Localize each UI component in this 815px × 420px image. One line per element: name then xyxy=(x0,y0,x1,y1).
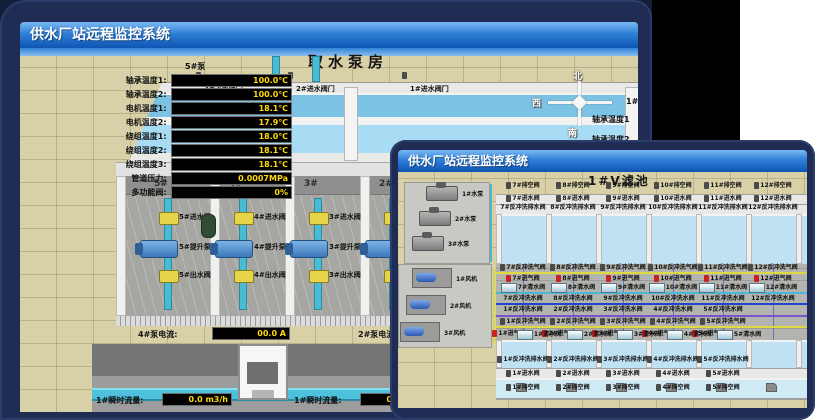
outlet-valve-label[interactable]: 5#出水阀 xyxy=(179,272,211,279)
backwash-drain-valve-label[interactable]: 5#反冲洗排水阀 xyxy=(695,356,751,363)
valve-icon[interactable] xyxy=(647,356,652,363)
clean-water-valve-label[interactable]: 4#清水阀 xyxy=(661,330,717,340)
inlet-valve[interactable] xyxy=(234,212,254,225)
valve-icon[interactable] xyxy=(506,195,511,202)
panel-row: 多功能阀:0% xyxy=(60,186,292,198)
valve-icon[interactable] xyxy=(500,264,505,271)
valve-icon[interactable] xyxy=(500,318,505,325)
valve-icon[interactable] xyxy=(654,195,659,202)
valve-icon[interactable] xyxy=(697,356,702,363)
inlet-valve-label[interactable]: 12#进水阀 xyxy=(745,195,801,202)
valve-icon[interactable] xyxy=(556,182,561,189)
bay-number: 3# xyxy=(304,179,318,189)
lift-pump-label[interactable]: 4#提升泵 xyxy=(254,244,286,251)
tank-icon[interactable] xyxy=(717,330,733,340)
inlet-valve-label[interactable]: 5#进水阀 xyxy=(695,370,751,377)
backwash-water-valve-label[interactable]: 8#反冲洗水阀 xyxy=(545,296,601,302)
backwash-drain-valve-label[interactable]: 10#反冲洗排水阀 xyxy=(645,205,701,211)
clean-water-valve-label[interactable]: 5#清水阀 xyxy=(711,330,767,340)
valve-icon[interactable] xyxy=(506,370,511,377)
outlet-valve-label[interactable]: 3#出水阀 xyxy=(329,272,361,279)
alarm-valve-icon[interactable] xyxy=(606,275,611,282)
inlet-valve-label[interactable]: 2#进水阀 xyxy=(545,370,601,377)
drain-valve-label[interactable]: 7#排空阀 xyxy=(495,182,551,189)
inlet-valve-label[interactable]: 3#进水阀 xyxy=(595,370,651,377)
background-gap xyxy=(652,0,740,153)
outlet-valve-label[interactable]: 4#出水阀 xyxy=(254,272,286,279)
valve-icon[interactable] xyxy=(606,370,611,377)
clean-water-valve-label[interactable]: 3#清水阀 xyxy=(611,330,667,340)
backwash-water-valve-label[interactable]: 9#反冲洗水阀 xyxy=(595,296,651,302)
roof-pipe xyxy=(312,56,320,82)
pool-divider xyxy=(596,340,602,368)
panel-row-label: 绕组温度1: xyxy=(60,131,171,142)
valve-icon[interactable] xyxy=(606,384,611,391)
filter-pump[interactable] xyxy=(426,186,458,201)
backwash-water-valve-label[interactable]: 4#反冲洗水阀 xyxy=(645,307,701,313)
channel-divider xyxy=(344,87,358,161)
backwash-drain-valve-label[interactable]: 11#反冲洗排水阀 xyxy=(695,205,751,211)
pool-divider xyxy=(546,214,552,264)
panel-row-label: 电机温度2: xyxy=(60,117,171,128)
panel-row-display[interactable]: 0.0007MPa xyxy=(171,172,292,185)
backwash-air-valve-label[interactable]: 3#反冲洗气阀 xyxy=(595,318,651,325)
pool-divider xyxy=(496,340,502,368)
drain-valve-label[interactable]: 11#排空阀 xyxy=(695,182,751,189)
backwash-air-valve-label[interactable]: 1#反冲洗气阀 xyxy=(495,318,551,325)
alarm-valve-icon[interactable] xyxy=(506,275,511,282)
inlet-valve-label[interactable]: 1#进水阀 xyxy=(495,370,551,377)
pump-current-display[interactable]: 00.0 A xyxy=(212,327,290,340)
valve-icon[interactable] xyxy=(656,384,661,391)
cabinet-pedestal xyxy=(252,390,274,398)
panel-row-label: 电机温度1: xyxy=(60,103,171,114)
pool-divider xyxy=(546,340,552,368)
tank-icon[interactable] xyxy=(567,330,583,340)
desktop: 供水厂站远程监控系统 取水泵房 xyxy=(0,0,815,420)
drain-valve-label[interactable]: 4#排空阀 xyxy=(645,384,701,391)
lift-pump[interactable] xyxy=(140,240,178,258)
tank-icon[interactable] xyxy=(501,283,517,293)
panel-row: 绕组温度2:18.1℃ xyxy=(60,144,292,156)
panel-row-display[interactable]: 18.1℃ xyxy=(171,102,292,115)
blower[interactable] xyxy=(406,295,446,315)
valve-icon[interactable] xyxy=(547,356,552,363)
backwash-drain-valve-label[interactable]: 12#反冲洗排水阀 xyxy=(745,205,801,211)
front-window-title: 供水厂站远程监控系统 xyxy=(408,154,528,168)
panel-row-label: 绕组温度3: xyxy=(60,159,171,170)
backwash-air-valve-label[interactable]: 11#反冲洗气阀 xyxy=(695,264,751,271)
valve-icon[interactable] xyxy=(606,182,611,189)
gate-valve-icon[interactable] xyxy=(402,72,407,79)
tank-icon[interactable] xyxy=(617,330,633,340)
front-scene: 1#V滤池 7#排空阀8#排空阀9#排空阀10#排空阀11#排空 xyxy=(398,172,807,408)
pool-divider xyxy=(646,340,652,368)
drain-valve-label[interactable]: 10#排空阀 xyxy=(645,182,701,189)
panel-row: 轴承温度1:100.0℃ xyxy=(60,74,292,86)
inlet-gate-label[interactable]: 2#进水阀门 xyxy=(296,86,335,93)
clean-water-valve-label[interactable]: 10#清水阀 xyxy=(645,283,701,293)
air-pipe-line xyxy=(496,326,807,328)
valve-icon[interactable] xyxy=(698,264,703,271)
filter-pump-label[interactable]: 3#水泵 xyxy=(448,239,469,248)
valve-icon[interactable] xyxy=(506,384,511,391)
blower-label[interactable]: 2#风机 xyxy=(450,301,471,310)
lift-pump[interactable] xyxy=(215,240,253,258)
inlet-valve-label[interactable]: 7#进水阀 xyxy=(495,195,551,202)
lift-pump[interactable] xyxy=(290,240,328,258)
pool-divider xyxy=(646,214,652,264)
air-inlet-valve-label[interactable]: 7#进气阀 xyxy=(495,275,551,282)
drain-valve-label[interactable]: 1#排空阀 xyxy=(495,384,551,391)
air-inlet-valve-label[interactable]: 11#进气阀 xyxy=(695,275,751,282)
inlet-gate-label[interactable]: 1#进水阀门 xyxy=(410,86,449,93)
alarm-valve-icon[interactable] xyxy=(704,275,709,282)
valve-icon[interactable] xyxy=(556,384,561,391)
panel-row-display[interactable]: 0% xyxy=(171,186,292,199)
panel-row-label: 绕组温度2: xyxy=(60,145,171,156)
compass-west-label: 西 xyxy=(532,96,541,109)
valve-icon[interactable] xyxy=(700,318,705,325)
panel-row-display[interactable]: 18.1℃ xyxy=(171,144,292,157)
backwash-air-valve-label[interactable]: 9#反冲洗气阀 xyxy=(595,264,651,271)
inlet-valve-label[interactable]: 4#进水阀 xyxy=(645,370,701,377)
backwash-water-valve-label[interactable]: 2#反冲洗水阀 xyxy=(545,307,601,313)
filter-pump-label[interactable]: 2#水泵 xyxy=(455,214,476,223)
drain-valve-label[interactable]: 5#排空阀 xyxy=(695,384,751,391)
panel-row-label: 管道压力: xyxy=(60,173,171,184)
drain-valve-label[interactable]: 8#排空阀 xyxy=(545,182,601,189)
air-inlet-valve-label[interactable]: 10#进气阀 xyxy=(645,275,701,282)
panel-row: 绕组温度3:18.1℃ xyxy=(60,158,292,170)
inlet-valve-label[interactable]: 9#进水阀 xyxy=(595,195,651,202)
valve-icon[interactable] xyxy=(556,195,561,202)
valve-icon[interactable] xyxy=(704,195,709,202)
backwash-air-valve-label[interactable]: 10#反冲洗气阀 xyxy=(645,264,701,271)
backwash-air-valve-label[interactable]: 4#反冲洗气阀 xyxy=(645,318,701,325)
clean-water-valve-label[interactable]: 12#清水阀 xyxy=(745,283,801,293)
flow-label: 1#瞬时流量: xyxy=(294,395,341,406)
valve-icon[interactable] xyxy=(556,370,561,377)
pool-divider xyxy=(596,214,602,264)
compass-north-label: 北 xyxy=(573,69,582,82)
tank-icon[interactable] xyxy=(551,283,567,293)
valve-icon[interactable] xyxy=(497,356,502,363)
valve-icon[interactable] xyxy=(648,264,653,271)
backwash-water-valve-label[interactable]: 12#反冲洗水阀 xyxy=(745,296,801,302)
inlet-valve-label[interactable]: 11#进水阀 xyxy=(695,195,751,202)
panel-row-label: 轴承温度1: xyxy=(60,75,171,86)
valve-icon[interactable] xyxy=(704,182,709,189)
panel-row: 管道压力:0.0007MPa xyxy=(60,172,292,184)
pool-divider xyxy=(796,214,802,264)
tank-icon[interactable] xyxy=(699,283,715,293)
inlet-valve-label[interactable]: 10#进水阀 xyxy=(645,195,701,202)
right-panel-header: 1#泵 xyxy=(626,96,638,107)
back-scene-title: 取水泵房 xyxy=(308,51,388,72)
panel-row-display[interactable]: 18.1℃ xyxy=(171,158,292,171)
bay-tank xyxy=(201,214,216,238)
blower-label[interactable]: 1#风机 xyxy=(456,274,477,283)
flow-label: 1#瞬时流量: xyxy=(96,395,143,406)
blower-label[interactable]: 3#风机 xyxy=(444,328,465,337)
air-inlet-valve-label[interactable]: 12#进气阀 xyxy=(745,275,801,282)
lift-pump-label[interactable]: 5#提升泵 xyxy=(179,244,211,251)
panel-row: 轴承温度2:100.0℃ xyxy=(60,88,292,100)
alarm-valve-icon[interactable] xyxy=(754,275,759,282)
backwash-air-valve-label[interactable]: 2#反冲洗气阀 xyxy=(545,318,601,325)
filter-pump-label[interactable]: 1#水泵 xyxy=(462,189,483,198)
backwash-air-valve-label[interactable]: 7#反冲洗气阀 xyxy=(495,264,551,271)
valve-icon[interactable] xyxy=(754,182,759,189)
front-title-bar[interactable]: 供水厂站远程监控系统 xyxy=(398,150,807,172)
cabinet-equipment xyxy=(247,362,278,384)
backwash-air-valve-label[interactable]: 12#反冲洗气阀 xyxy=(745,264,801,271)
panel-row: 电机温度1:18.1℃ xyxy=(60,102,292,114)
tank-icon[interactable] xyxy=(749,283,765,293)
backwash-water-valve-label[interactable]: 1#反冲洗水阀 xyxy=(495,307,551,313)
drain-valve-label[interactable]: 12#排空阀 xyxy=(745,182,801,189)
backwash-drain-valve-label[interactable]: 9#反冲洗排水阀 xyxy=(595,205,651,211)
inlet-valve[interactable] xyxy=(159,212,179,225)
air-inlet-valve-label[interactable]: 9#进气阀 xyxy=(595,275,651,282)
valve-icon[interactable] xyxy=(706,384,711,391)
valve-icon[interactable] xyxy=(654,182,659,189)
flow-display[interactable]: 0.0 m3/h xyxy=(162,393,232,406)
valve-icon[interactable] xyxy=(600,318,605,325)
air-inlet-valve-label[interactable]: 8#进气阀 xyxy=(545,275,601,282)
outlet-valve[interactable] xyxy=(159,270,179,283)
alarm-valve-icon[interactable] xyxy=(654,275,659,282)
front-window: 供水厂站远程监控系统 1#V滤池 xyxy=(398,150,807,408)
right-panel-row: 轴承温度1 xyxy=(592,114,630,125)
valve-icon[interactable] xyxy=(597,356,602,363)
clean-water-valve-label[interactable]: 8#清水阀 xyxy=(545,283,601,293)
alarm-valve-icon[interactable] xyxy=(556,275,561,282)
clean-water-valve-label[interactable]: 11#清水阀 xyxy=(695,283,751,293)
panel-row-label: 多功能阀: xyxy=(60,187,171,198)
clean-water-valve-label[interactable]: 2#清水阀 xyxy=(561,330,617,340)
pump-panel-header: 5#泵 xyxy=(185,61,205,72)
blower[interactable] xyxy=(412,268,452,288)
drain-valve-label[interactable]: 3#排空阀 xyxy=(595,384,651,391)
backwash-pipe-line xyxy=(496,315,807,317)
panel-row-display[interactable]: 18.0℃ xyxy=(171,130,292,143)
backwash-drain-valve-label[interactable]: 4#反冲洗排水阀 xyxy=(645,356,701,363)
backwash-drain-valve-label[interactable]: 8#反冲洗排水阀 xyxy=(545,205,601,211)
clean-water-valve-label[interactable]: 7#清水阀 xyxy=(495,283,551,293)
backwash-air-valve-label[interactable]: 5#反冲洗气阀 xyxy=(695,318,751,325)
panel-row-label: 轴承温度2: xyxy=(60,89,171,100)
clean-water-valve-label[interactable]: 9#清水阀 xyxy=(595,283,651,293)
back-title-bar[interactable]: 供水厂站远程监控系统 xyxy=(20,22,638,48)
backwash-water-valve-label[interactable]: 10#反冲洗水阀 xyxy=(645,296,701,302)
backwash-drain-valve-label[interactable]: 7#反冲洗排水阀 xyxy=(495,205,551,211)
backwash-air-valve-label[interactable]: 8#反冲洗气阀 xyxy=(545,264,601,271)
inlet-valve-label[interactable]: 8#进水阀 xyxy=(545,195,601,202)
valve-icon[interactable] xyxy=(550,264,555,271)
pump-current-label: 4#泵电流: xyxy=(138,329,177,340)
backwash-drain-valve-label[interactable]: 2#反冲洗排水阀 xyxy=(545,356,601,363)
valve-icon[interactable] xyxy=(600,264,605,271)
pool-divider xyxy=(796,340,802,368)
outlet-valve[interactable] xyxy=(234,270,254,283)
pool-divider xyxy=(696,340,702,368)
valve-icon[interactable] xyxy=(754,195,759,202)
panel-row: 电机温度2:17.9℃ xyxy=(60,116,292,128)
pool-divider xyxy=(746,340,752,368)
valve-icon[interactable] xyxy=(650,318,655,325)
backwash-drain-valve-label[interactable]: 1#反冲洗排水阀 xyxy=(495,356,551,363)
front-window-frame: 供水厂站远程监控系统 1#V滤池 xyxy=(390,140,815,420)
valve-icon[interactable] xyxy=(606,195,611,202)
drain-valve-label[interactable]: 9#排空阀 xyxy=(595,182,651,189)
panel-row-display[interactable]: 17.9℃ xyxy=(171,116,292,129)
pump-pipe-line xyxy=(490,184,492,262)
backwash-water-valve-label[interactable]: 11#反冲洗水阀 xyxy=(695,296,751,302)
backwash-pipe-line xyxy=(496,303,807,305)
pool-divider xyxy=(496,214,502,264)
valve-icon[interactable] xyxy=(506,182,511,189)
tank-icon[interactable] xyxy=(601,283,617,293)
tank-icon[interactable] xyxy=(517,330,533,340)
inlet-valve-label[interactable]: 3#进水阀 xyxy=(329,214,361,221)
air-pipe-line xyxy=(496,272,807,274)
drain-elbow-pipe xyxy=(766,383,777,392)
valve-icon[interactable] xyxy=(656,370,661,377)
pool-divider xyxy=(696,214,702,264)
pool-divider xyxy=(746,214,752,264)
lift-pump-label[interactable]: 3#提升泵 xyxy=(329,244,361,251)
inlet-valve-label[interactable]: 4#进水阀 xyxy=(254,214,286,221)
equipment-cabinet[interactable] xyxy=(238,344,288,400)
compass-south-label: 南 xyxy=(568,126,577,139)
tank-icon[interactable] xyxy=(667,330,683,340)
alarm-valve-icon[interactable] xyxy=(492,330,497,337)
backwash-water-valve-label[interactable]: 3#反冲洗水阀 xyxy=(595,307,651,313)
blower[interactable] xyxy=(400,322,440,342)
filter-pump[interactable] xyxy=(412,236,444,251)
backwash-water-valve-label[interactable]: 7#反冲洗水阀 xyxy=(495,296,551,302)
panel-row-display[interactable]: 100.0℃ xyxy=(171,74,292,87)
valve-icon[interactable] xyxy=(706,370,711,377)
filter-pump[interactable] xyxy=(419,211,451,226)
backwash-water-valve-label[interactable]: 5#反冲洗水阀 xyxy=(695,307,751,313)
inlet-valve[interactable] xyxy=(309,212,329,225)
pump-data-panel: 5#泵 轴承温度1:100.0℃轴承温度2:100.0℃电机温度1:18.1℃电… xyxy=(60,74,292,200)
backwash-drain-valve-label[interactable]: 3#反冲洗排水阀 xyxy=(595,356,651,363)
panel-row: 绕组温度1:18.0℃ xyxy=(60,130,292,142)
clean-water-valve-label[interactable]: 1#清水阀 xyxy=(511,330,567,340)
outlet-valve[interactable] xyxy=(309,270,329,283)
tank-icon[interactable] xyxy=(649,283,665,293)
back-window-title: 供水厂站远程监控系统 xyxy=(30,27,170,43)
panel-row-display[interactable]: 100.0℃ xyxy=(171,88,292,101)
drain-valve-label[interactable]: 2#排空阀 xyxy=(545,384,601,391)
valve-icon[interactable] xyxy=(748,264,753,271)
valve-icon[interactable] xyxy=(550,318,555,325)
